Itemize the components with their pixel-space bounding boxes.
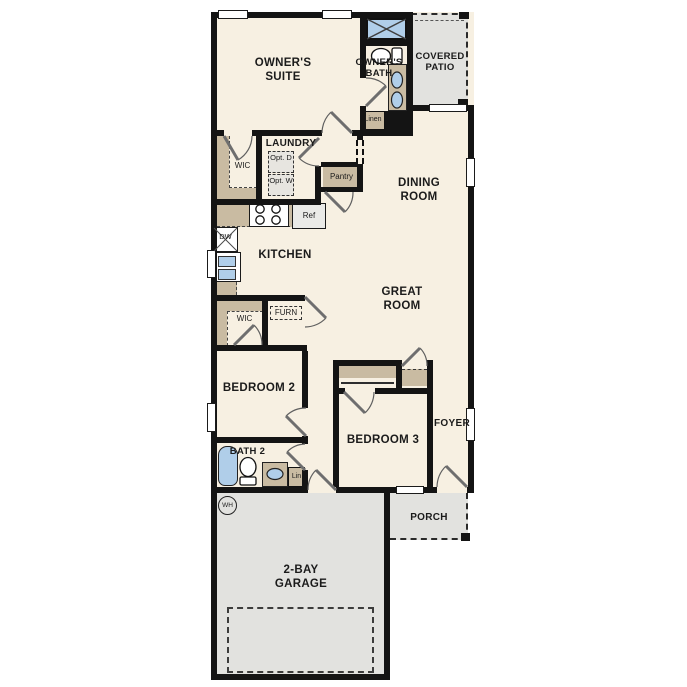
wall	[333, 360, 400, 366]
wall	[252, 130, 322, 136]
room-label-foyer: FOYER	[432, 418, 472, 430]
label-water-heater: WH	[218, 502, 237, 510]
wall	[256, 136, 262, 199]
coat-closet-shelf	[402, 369, 427, 386]
label-lin: Lin	[288, 473, 305, 481]
bath2-vanity	[262, 462, 288, 487]
wall	[467, 487, 474, 493]
wall	[211, 674, 390, 680]
room-label-great-room: GREAT ROOM	[367, 286, 437, 314]
label-opt-washer: Opt. W	[268, 176, 294, 185]
wall	[211, 493, 217, 680]
wall	[375, 388, 427, 394]
porch-post	[461, 533, 470, 541]
room-label-bedroom3: BEDROOM 3	[338, 434, 428, 448]
wall	[211, 295, 305, 301]
room-label-owners-suite: OWNER'S SUITE	[238, 57, 328, 85]
room-label-covered-patio: COVERED PATIO	[412, 51, 468, 74]
label-wic-owners: WIC	[229, 161, 256, 171]
room-label-owners-bath: OWNER'S BATH	[350, 57, 408, 80]
label-pantry: Pantry	[323, 172, 360, 182]
wall	[315, 166, 321, 199]
wall	[211, 199, 321, 205]
shower	[366, 18, 407, 40]
patio-post	[459, 12, 469, 19]
label-opt-dryer: Opt. D	[268, 153, 294, 162]
wall-mass	[385, 111, 413, 130]
wall	[211, 487, 307, 493]
owners-wic-shelf-bottom	[217, 187, 256, 199]
wall	[302, 351, 308, 408]
room-label-garage: 2-BAY GARAGE	[261, 564, 341, 592]
cased-opening	[356, 140, 364, 164]
wall	[336, 487, 396, 493]
label-furn: FURN	[270, 306, 302, 320]
patio-slider-window	[429, 104, 467, 112]
window	[218, 10, 248, 19]
window	[322, 10, 352, 19]
room-label-laundry: LAUNDRY	[263, 138, 319, 150]
wall	[211, 437, 308, 443]
wall	[211, 345, 307, 351]
label-dw: DW	[213, 232, 238, 241]
kitchen-sink-bowl-1	[218, 256, 236, 267]
window	[396, 486, 424, 494]
wall	[262, 301, 268, 345]
room-label-kitchen: KITCHEN	[240, 249, 330, 263]
window	[466, 158, 475, 187]
closet-rod	[341, 382, 394, 384]
room-label-bedroom2: BEDROOM 2	[214, 382, 304, 396]
label-linen: Linen	[361, 116, 385, 124]
room-label-porch: PORCH	[399, 512, 459, 524]
wall	[360, 40, 413, 46]
bedroom3-closet-shelf	[339, 366, 396, 378]
wall	[211, 130, 224, 136]
window	[207, 403, 216, 432]
patio-inner-dashed-line	[415, 20, 464, 21]
wall	[384, 493, 390, 680]
garage-door-outline	[227, 607, 374, 673]
wall	[321, 187, 362, 192]
label-wic-bedroom2: WIC	[227, 314, 262, 324]
room-label-dining: DINING ROOM	[384, 177, 454, 205]
window	[207, 250, 216, 278]
wall	[333, 360, 339, 487]
room-label-bath2: BATH 2	[220, 446, 275, 457]
label-ref: Ref	[292, 211, 326, 221]
kitchen-sink-bowl-2	[218, 269, 236, 280]
bedroom2-wic-shelf-left	[217, 301, 227, 345]
wall	[339, 388, 345, 394]
floor-plan: OWNER'S SUITE OWNER'S BATH COVERED PATIO…	[0, 0, 687, 687]
